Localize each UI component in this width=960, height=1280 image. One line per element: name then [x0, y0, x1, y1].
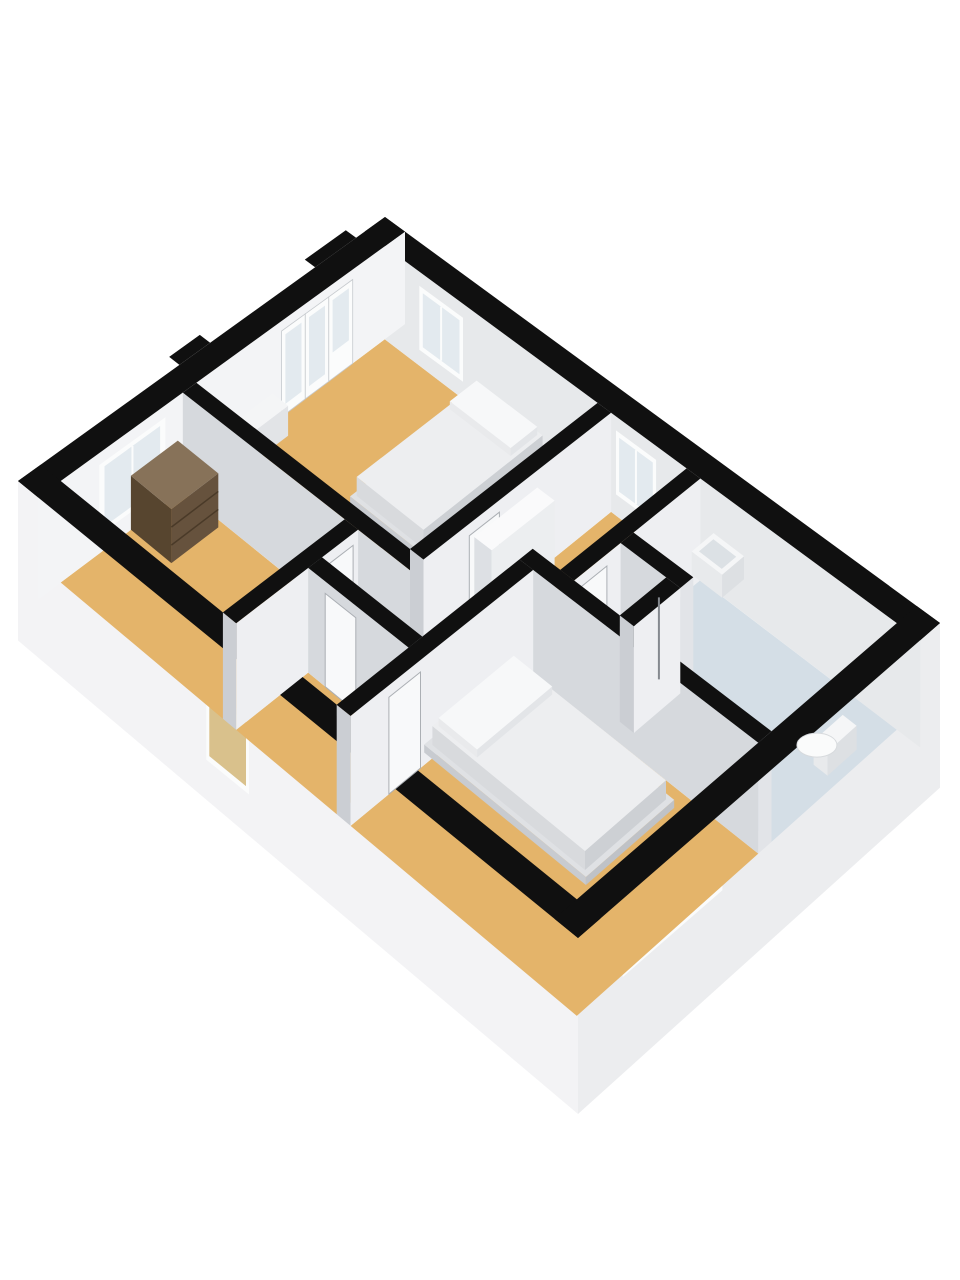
- toilet-bowl: [797, 733, 837, 757]
- wall-shower-se-face-sw: [620, 615, 634, 733]
- wall-ext-nw-glassdoor-glazing: [309, 306, 325, 387]
- wall-bedroom-btm-nw-face-sw: [337, 705, 351, 826]
- wall-ext-nw-glassdoor-glazing: [285, 323, 301, 404]
- floorplan-page: [0, 0, 960, 1280]
- wall-left-room-se-face-sw: [223, 612, 236, 730]
- floorplan-3d-canvas: [0, 0, 960, 1280]
